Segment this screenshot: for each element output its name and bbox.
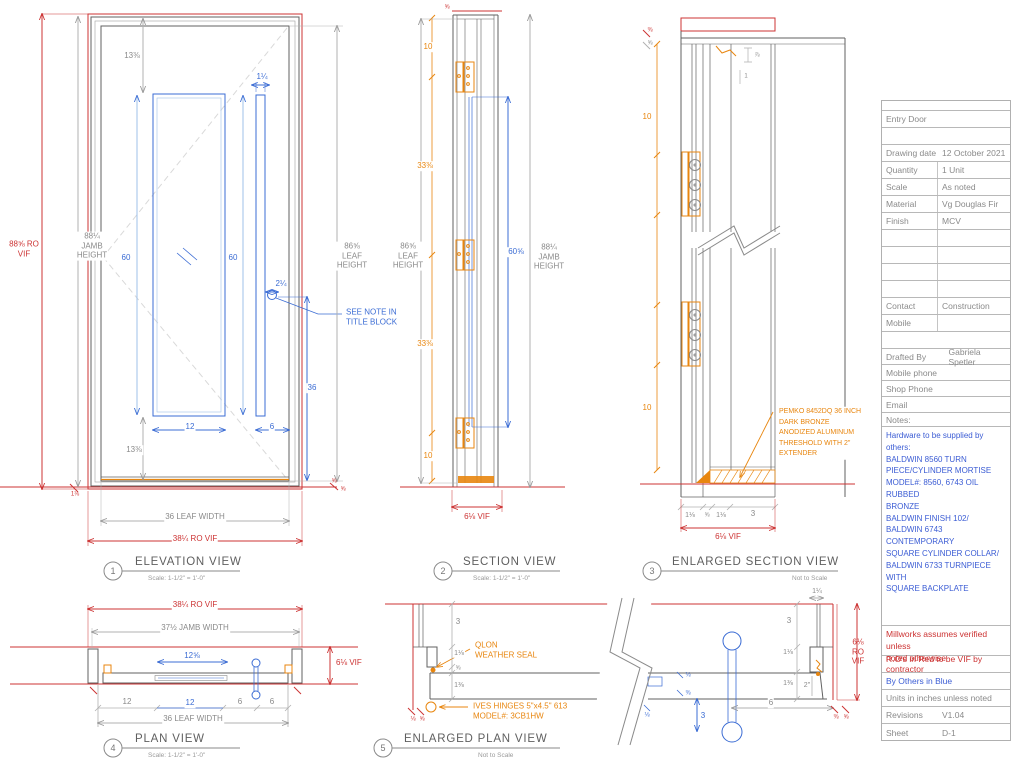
drawing-date-row: Drawing date 12 October 2021 bbox=[882, 145, 1010, 162]
dim-enlplan-tr-a: ⅜ bbox=[833, 714, 838, 721]
view-2-scale: Scale: 1-1/2" = 1'-0" bbox=[473, 575, 530, 582]
empty-row bbox=[882, 230, 1010, 247]
revisions-row: Revisions V1.04 bbox=[882, 707, 1010, 724]
view-2-badge: 2 bbox=[440, 566, 445, 576]
dim-enlplan-l-leaf: 1⅜ bbox=[453, 682, 465, 690]
dim-hinge-top: 10 bbox=[423, 42, 434, 52]
view-1-scale: Scale: 1-1/2" = 1'-0" bbox=[148, 575, 205, 582]
dim-plan-gap-a: 6 bbox=[237, 697, 243, 707]
dim-enlplan-l-jamb: 1⅛ bbox=[453, 650, 465, 658]
view-3-title: ENLARGED SECTION VIEW bbox=[672, 556, 839, 568]
title-block-spacer bbox=[882, 101, 1010, 111]
units-note: Units in inches unless noted bbox=[882, 690, 1010, 707]
elevation-view-linework bbox=[0, 14, 343, 546]
dim-jamb-height-section: 88¼ JAMB HEIGHT bbox=[533, 243, 565, 272]
view-3-scale: Not to Scale bbox=[792, 575, 827, 582]
dim-section-head: ⅝ bbox=[444, 4, 449, 11]
shop-phone-label: Shop Phone bbox=[882, 384, 1010, 394]
qlon-seal-note: QLON WEATHER SEAL bbox=[474, 640, 538, 659]
empty-row bbox=[882, 247, 1010, 264]
revisions-label: Revisions bbox=[882, 707, 938, 723]
notes-header-row: Notes: bbox=[882, 413, 1010, 427]
dim-leaf-height: 86⅝ LEAF HEIGHT bbox=[336, 242, 368, 271]
dim-plan-gap-b: 6 bbox=[269, 697, 275, 707]
scale-row: Scale As noted bbox=[882, 179, 1010, 196]
email-label: Email bbox=[882, 400, 1010, 410]
dim-glass-top: 13⅜ bbox=[123, 51, 141, 61]
dim-enlsec-b4: 3 bbox=[750, 509, 756, 519]
empty-row bbox=[882, 264, 1010, 281]
dim-enlplan-tm-a: ⅛ bbox=[685, 672, 690, 679]
drafted-by-label: Drafted By bbox=[882, 352, 945, 362]
dim-hinge-lower: 33⅜ bbox=[416, 339, 434, 349]
dim-enlplan-tb-a: ⅛ bbox=[644, 712, 649, 719]
view-3-badge: 3 bbox=[649, 566, 654, 576]
view-5-title: ENLARGED PLAN VIEW bbox=[404, 733, 548, 745]
material-label: Material bbox=[882, 196, 938, 212]
dim-enlsec-b3: 1⅛ bbox=[715, 512, 727, 520]
quantity-row: Quantity 1 Unit bbox=[882, 162, 1010, 179]
view-4-badge: 4 bbox=[110, 743, 115, 753]
dim-glass-width: 12 bbox=[185, 422, 196, 432]
dim-enlplan-2in: 2" bbox=[803, 682, 811, 690]
view-1-badge: 1 bbox=[110, 566, 115, 576]
contact-row: Contact Construction bbox=[882, 298, 1010, 315]
dim-enlplan-ro-depth: 6⅛ RO VIF bbox=[851, 638, 865, 667]
dim-plan-depth-vif: 6⅛ VIF bbox=[335, 658, 363, 668]
dim-enlplan-r-wall: 3 bbox=[786, 616, 792, 626]
dim-enlplan-pull-center: 3 bbox=[700, 711, 706, 721]
dim-pull-edge: 2¼ bbox=[274, 279, 287, 289]
dim-enlsec-top: 10 bbox=[642, 112, 653, 122]
mobile-phone-label: Mobile phone bbox=[882, 368, 1010, 378]
project-name-row: Entry Door bbox=[882, 111, 1010, 128]
dim-enlplan-pull-off: 6 bbox=[768, 698, 774, 708]
dim-enlplan-r-jamb: 1⅛ bbox=[782, 649, 794, 657]
dim-enlplan-jamb-w: 1¼ bbox=[811, 588, 823, 596]
mobile-row: Mobile bbox=[882, 315, 1010, 332]
dim-pull-height: 60 bbox=[228, 253, 239, 263]
empty-row bbox=[882, 281, 1010, 298]
ives-hinge-note: IVES HINGES 5"x4.5" 613 MODEL#: 3CB1HW bbox=[472, 701, 568, 720]
quantity-value: 1 Unit bbox=[938, 165, 1010, 175]
project-name: Entry Door bbox=[882, 114, 1010, 124]
pemko-threshold-note: PEMKO 8452DQ 36 INCH DARK BRONZE ANODIZE… bbox=[778, 407, 862, 460]
view-4-title: PLAN VIEW bbox=[135, 733, 205, 745]
email-row: Email bbox=[882, 397, 1010, 413]
dim-leaf-width: 36 LEAF WIDTH bbox=[164, 512, 226, 522]
dim-threshold-right-a: ⅝ bbox=[331, 478, 336, 485]
hardware-note: Hardware to be supplied by others: BALDW… bbox=[882, 427, 1010, 626]
sheet-value: D-1 bbox=[938, 728, 1010, 738]
view-5-scale: Not to Scale bbox=[478, 752, 513, 759]
dim-hinge-bottom: 10 bbox=[423, 451, 434, 461]
contact-value: Construction bbox=[938, 301, 1010, 311]
mobile-label: Mobile bbox=[882, 315, 938, 331]
dim-enlsec-bottom: 10 bbox=[642, 403, 653, 413]
see-note-callout: SEE NOTE IN TITLE BLOCK bbox=[345, 307, 398, 326]
view-5-badge: 5 bbox=[380, 743, 385, 753]
finish-label: Finish bbox=[882, 213, 938, 229]
dim-plan-leaf-width: 36 LEAF WIDTH bbox=[162, 714, 224, 724]
millworks-disclaimer: Millworks assumes verified unless noted … bbox=[882, 626, 1010, 656]
material-row: Material Vg Douglas Fir bbox=[882, 196, 1010, 213]
by-others-note: By Others in Blue bbox=[882, 673, 1010, 690]
dim-glass-height: 60 bbox=[121, 253, 132, 263]
dim-enlplan-tl-b: ⅝ bbox=[419, 716, 424, 723]
shop-phone-row: Shop Phone bbox=[882, 381, 1010, 397]
dim-plan-left: 12 bbox=[122, 697, 133, 707]
drafted-by-value: Gabriela Spetler bbox=[945, 347, 1011, 367]
drawing-date-value: 12 October 2021 bbox=[938, 148, 1010, 158]
dim-section-width-vif: 6⅛ VIF bbox=[463, 512, 491, 522]
material-value: Vg Douglas Fir bbox=[938, 199, 1010, 209]
dim-threshold-left: 1⅛ bbox=[71, 491, 79, 498]
dim-enlsec-tr1: ⅞ bbox=[754, 52, 759, 59]
dim-pull-width: 1¼ bbox=[255, 72, 268, 82]
dim-glass-bottom: 13⅜ bbox=[125, 445, 143, 455]
dim-enlsec-tl1: ⅜ bbox=[647, 27, 652, 34]
revisions-value: V1.04 bbox=[938, 710, 1010, 720]
ro-red-note: R.O's in Red to be VIF by contractor bbox=[882, 656, 1010, 673]
quantity-label: Quantity bbox=[882, 162, 938, 178]
dim-enlplan-l-gap: ⅝ bbox=[455, 665, 460, 672]
finish-value: MCV bbox=[938, 216, 1010, 226]
drawing-date-label: Drawing date bbox=[882, 145, 938, 161]
drafted-by-row: Drafted By Gabriela Spetler bbox=[882, 349, 1010, 365]
view-4-scale: Scale: 1-1/2" = 1'-0" bbox=[148, 752, 205, 759]
mobile-phone-row: Mobile phone bbox=[882, 365, 1010, 381]
sheet-label: Sheet bbox=[882, 724, 938, 742]
dim-enlsec-b1: 1⅛ bbox=[684, 512, 696, 520]
view-2-title: SECTION VIEW bbox=[463, 556, 556, 568]
dim-enlplan-tm-b: ⅜ bbox=[685, 690, 690, 697]
dim-enlplan-r-leaf: 1⅜ bbox=[782, 680, 794, 688]
title-block: Entry Door Drawing date 12 October 2021 … bbox=[881, 100, 1011, 741]
dim-pull-gap: 6 bbox=[269, 422, 275, 432]
empty-row bbox=[882, 128, 1010, 145]
dim-plan-glass-b: 12 bbox=[185, 698, 196, 708]
notes-label: Notes: bbox=[882, 415, 1010, 425]
dim-enlsec-tr2: 1 bbox=[744, 73, 747, 80]
contact-label: Contact bbox=[882, 298, 938, 314]
scale-value: As noted bbox=[938, 182, 1010, 192]
drawing-sheet: 88⅝ RO VIF 88¼ JAMB HEIGHT 13⅜ 1¼ 60 60 … bbox=[0, 0, 1024, 768]
dim-enlplan-tl-a: ⅛ bbox=[410, 716, 415, 723]
dim-plan-glass: 12⅝ bbox=[183, 651, 201, 661]
dim-plan-jamb-width: 37½ JAMB WIDTH bbox=[160, 623, 230, 633]
dim-enlplan-l-wall: 3 bbox=[455, 617, 461, 627]
dim-leaf-height-section: 86⅝ LEAF HEIGHT bbox=[392, 242, 424, 271]
dim-enlsec-vif: 6⅛ VIF bbox=[714, 532, 742, 542]
dim-ro-height: 88⅝ RO VIF bbox=[8, 239, 40, 258]
scale-label: Scale bbox=[882, 179, 938, 195]
view-1-title: ELEVATION VIEW bbox=[135, 556, 242, 568]
dim-glass-section: 60⅝ bbox=[507, 247, 525, 257]
dim-jamb-height: 88¼ JAMB HEIGHT bbox=[76, 232, 108, 261]
dim-hinge-upper: 33⅜ bbox=[416, 161, 434, 171]
finish-row: Finish MCV bbox=[882, 213, 1010, 230]
dim-enlplan-tr-b: ⅝ bbox=[843, 714, 848, 721]
dim-enlsec-b2: ⅝ bbox=[704, 512, 709, 519]
sheet-row: Sheet D-1 bbox=[882, 724, 1010, 742]
dim-threshold-right-b: ⅝ bbox=[340, 486, 345, 493]
dim-pull-bottom: 36 bbox=[307, 383, 318, 393]
dim-plan-ro-width: 38¼ RO VIF bbox=[172, 600, 218, 610]
dim-ro-width: 38¼ RO VIF bbox=[172, 534, 218, 544]
dim-enlsec-tl2: ⅝ bbox=[647, 40, 652, 47]
